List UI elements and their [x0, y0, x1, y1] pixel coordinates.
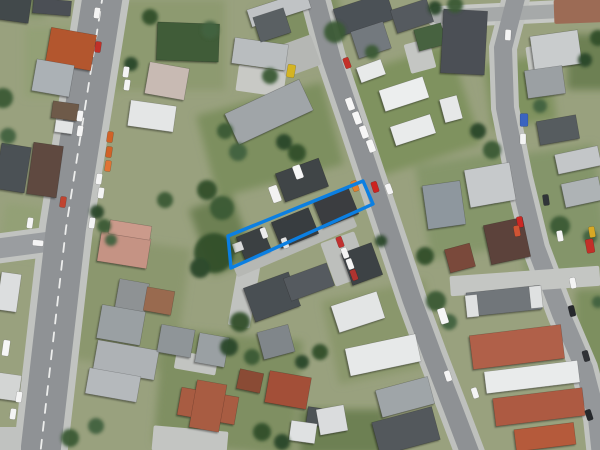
tree: [220, 338, 238, 356]
tree: [61, 429, 79, 447]
building-roof: [0, 0, 31, 23]
tree: [253, 423, 271, 441]
building-roof: [465, 294, 479, 317]
tree: [201, 21, 219, 39]
tree: [105, 234, 117, 246]
vehicle: [123, 79, 130, 91]
tree: [533, 99, 547, 113]
tree: [375, 235, 387, 247]
tree: [190, 258, 210, 278]
tree: [0, 128, 16, 144]
vehicle: [520, 114, 528, 127]
tree: [142, 9, 158, 25]
satellite-image: [0, 0, 600, 450]
tree: [217, 123, 233, 139]
aerial-satellite-view[interactable]: [0, 0, 600, 450]
vehicle: [122, 66, 129, 78]
tree: [312, 344, 328, 360]
vehicle: [59, 196, 66, 208]
tree: [197, 180, 217, 200]
paved-area: [554, 0, 600, 24]
building-roof: [529, 285, 543, 308]
tree: [157, 192, 173, 208]
vehicle: [9, 408, 16, 420]
tree: [244, 349, 260, 365]
tree: [262, 68, 278, 84]
building-roof: [143, 287, 175, 315]
tree: [416, 247, 434, 265]
tree: [274, 434, 290, 450]
vehicle: [76, 110, 83, 122]
paved-area: [0, 427, 21, 450]
building-roof: [54, 120, 73, 134]
vehicle: [97, 187, 104, 199]
vehicle: [94, 41, 101, 53]
building-roof: [289, 420, 318, 443]
tree: [229, 143, 247, 161]
tree: [288, 144, 306, 162]
building-roof: [32, 59, 75, 97]
building-roof: [51, 101, 79, 121]
tree: [88, 418, 104, 434]
tree: [295, 355, 309, 369]
vehicle: [15, 391, 22, 403]
building-roof: [316, 405, 348, 435]
tree: [483, 141, 501, 159]
building-roof: [440, 9, 487, 75]
building-roof: [265, 371, 312, 410]
tree: [276, 134, 292, 150]
building-roof: [464, 162, 516, 207]
building-roof: [157, 324, 195, 357]
vehicle: [32, 240, 43, 247]
vehicle: [105, 146, 112, 158]
tree: [365, 45, 379, 59]
tree: [578, 53, 592, 67]
vehicle: [88, 217, 95, 229]
vehicle: [26, 217, 33, 229]
vehicle: [542, 194, 549, 206]
vehicle: [76, 125, 83, 137]
tree: [230, 312, 250, 332]
building-roof: [422, 181, 466, 230]
vehicle: [505, 29, 512, 40]
tree: [210, 196, 234, 220]
tree: [90, 205, 104, 219]
tree: [97, 219, 111, 233]
building-roof: [96, 304, 145, 345]
tree: [324, 21, 346, 43]
building-roof: [524, 65, 566, 98]
building-roof: [145, 62, 190, 100]
vehicle: [520, 134, 526, 145]
tree: [470, 123, 486, 139]
vehicle: [95, 173, 102, 185]
tree: [428, 1, 442, 15]
vehicle: [93, 7, 100, 19]
vehicle: [104, 160, 111, 172]
vehicle: [106, 131, 113, 143]
building-roof: [530, 30, 582, 70]
